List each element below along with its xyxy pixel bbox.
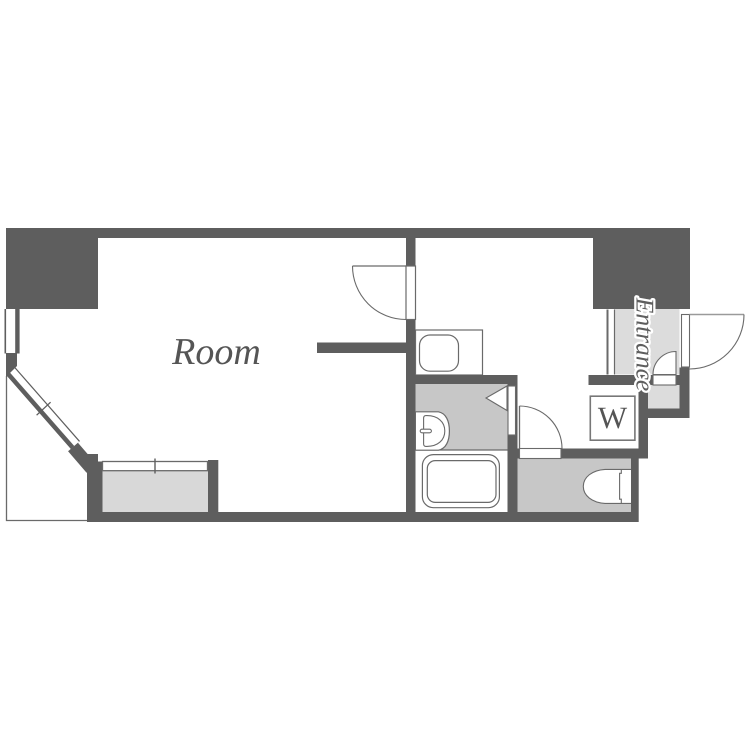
svg-text:Entrance: Entrance (631, 297, 660, 391)
svg-text:Room: Room (171, 331, 261, 373)
svg-text:W: W (598, 400, 628, 435)
